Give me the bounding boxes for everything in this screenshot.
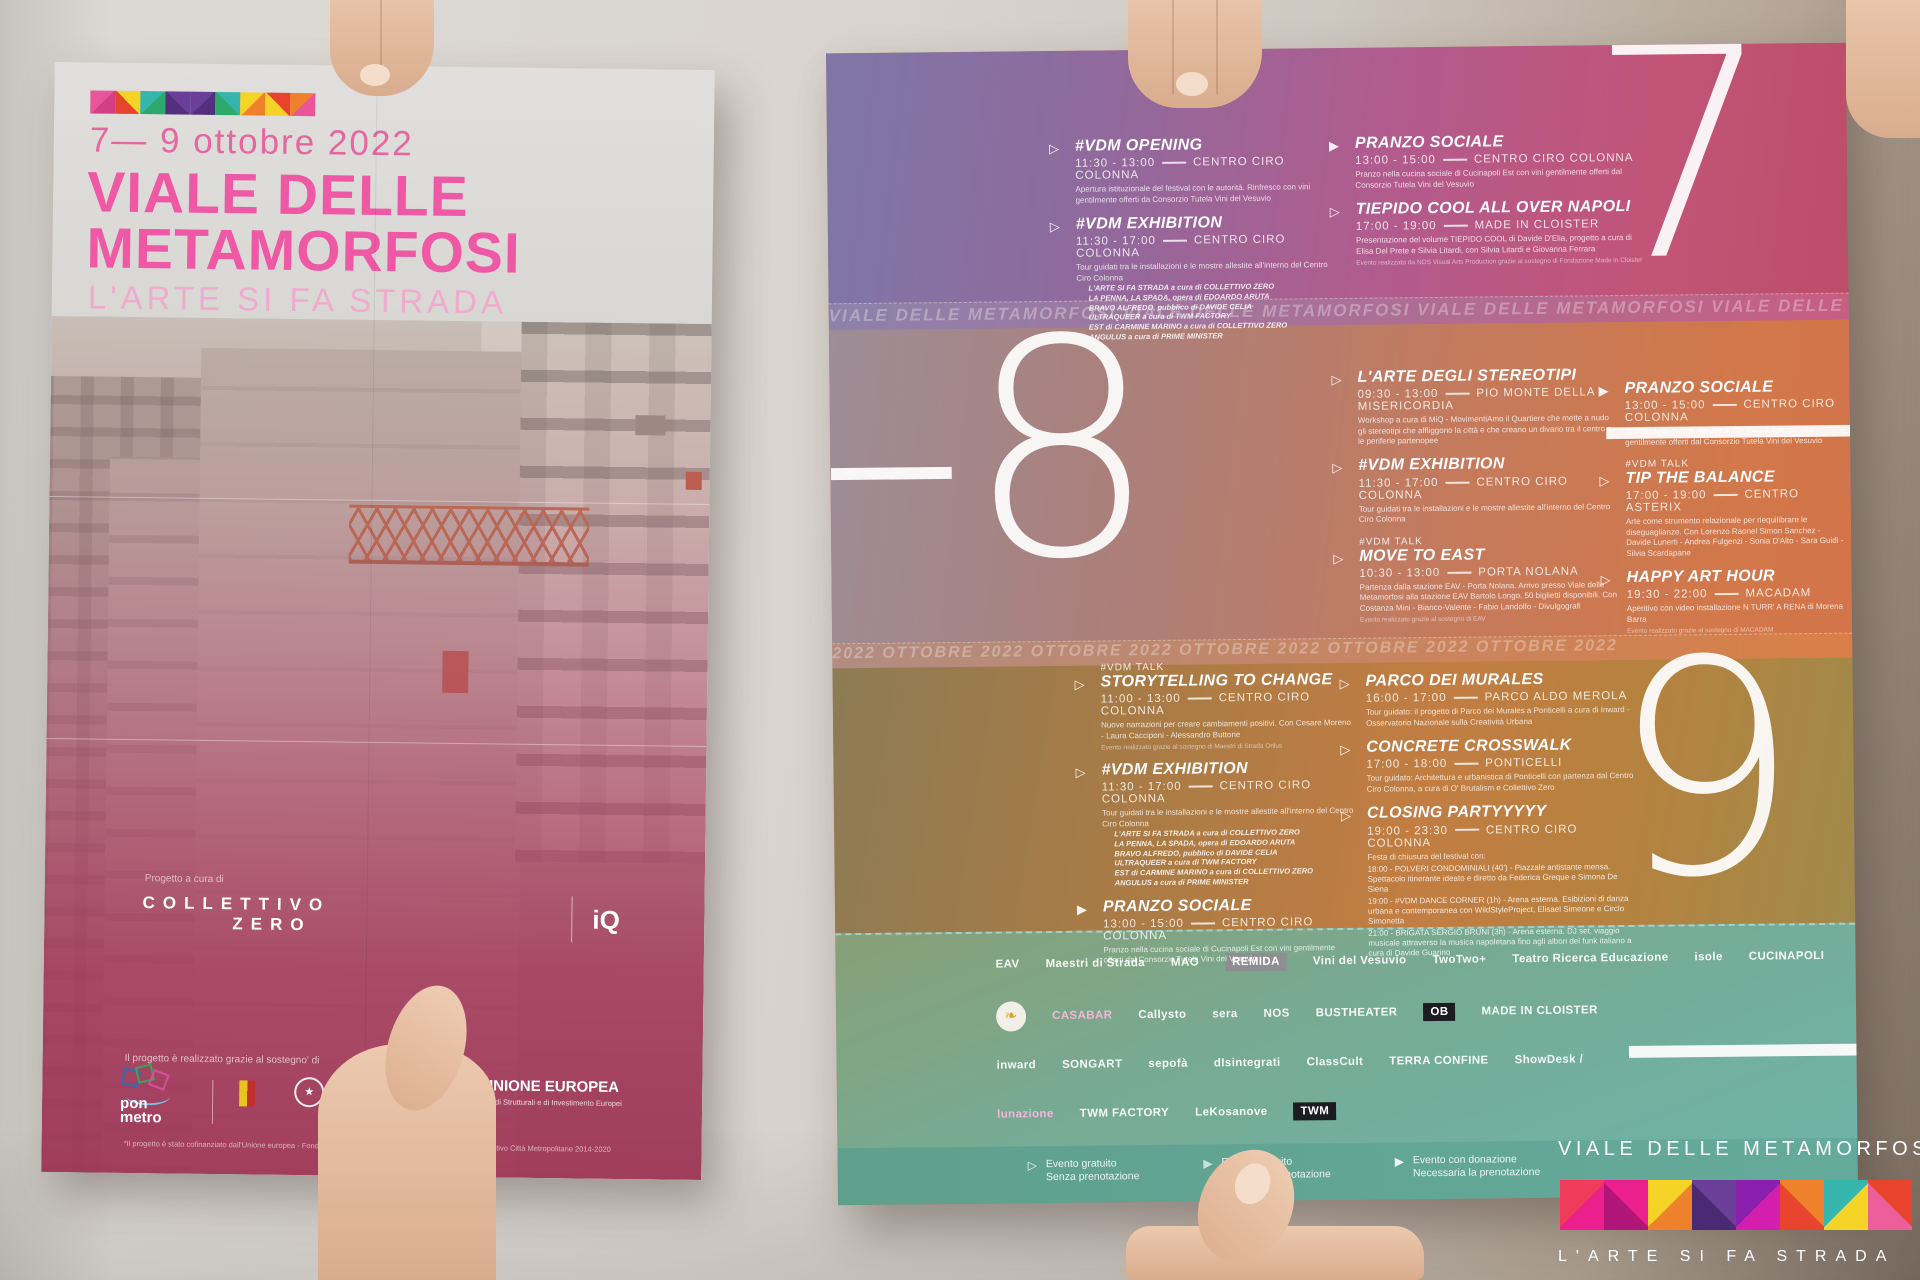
sponsor-logo-callysto: Callysto — [1138, 1009, 1186, 1022]
eu-name: UNIONE EUROPEA — [482, 1077, 619, 1096]
triangle-tile — [1868, 1180, 1912, 1230]
outline-triangle-icon: ▷ — [1050, 219, 1060, 235]
event-time-venue: 13:00 - 15:00CENTRO CIRO COLONNA — [1355, 152, 1647, 167]
dash — [1443, 159, 1467, 161]
event-title: STORYTELLING TO CHANGE — [1101, 672, 1353, 691]
event-desc: Festa di chiusura del festival con: — [1367, 849, 1635, 862]
legend-line: Evento gratuito — [1046, 1157, 1140, 1171]
day8-column-2: ▶ PRANZO SOCIALE 13:00 - 15:00CENTRO CIR… — [1624, 379, 1845, 646]
legend-item-donation: ▶ Evento con donazioneNecessaria la pren… — [1395, 1153, 1541, 1181]
outline-triangle-icon: ▷ — [1340, 676, 1350, 692]
sponsor-logo-twm-factory: TWM FACTORY — [1080, 1107, 1169, 1120]
event-desc: Presentazione del volume TIEPIDO COOL di… — [1356, 233, 1648, 257]
event-time: 17:00 - 18:00 — [1366, 758, 1447, 771]
sponsor-logo-showdesk: ShowDesk / — [1515, 1053, 1584, 1066]
event-title: L'ARTE DEGLI STEREOTIPI — [1357, 367, 1615, 386]
curator-logo-line2: ZERO — [232, 914, 311, 935]
sponsor-logo-sera: sera — [1212, 1008, 1237, 1020]
event-time-venue: 19:00 - 23:30CENTRO CIRO COLONNA — [1367, 822, 1635, 849]
event-time-venue: 13:00 - 15:00CENTRO CIRO COLONNA — [1103, 916, 1355, 943]
event-time: 11:30 - 17:00 — [1358, 477, 1438, 490]
legend-line: Evento con donazione — [1413, 1153, 1540, 1167]
legend-line: Necessaria la prenotazione — [1413, 1166, 1540, 1180]
event-time: 11:30 - 13:00 — [1075, 157, 1155, 170]
event-title: PRANZO SOCIALE — [1355, 133, 1647, 152]
event-desc: Tour guidato: il progetto di Parco dei M… — [1366, 705, 1634, 729]
event-closing-party: ▷ CLOSING PARTYYYYY 19:00 - 23:30CENTRO … — [1367, 803, 1637, 959]
event-desc: Pranzo nella cucina sociale di Cucinapol… — [1355, 167, 1647, 191]
event-title: PARCO DEI MURALES — [1366, 671, 1634, 690]
curator-logo-line1: COLLETTIVO — [142, 893, 330, 915]
filled-triangle-icon: ▶ — [1329, 138, 1339, 154]
triangle-tile — [165, 91, 190, 114]
event-pranzo-sociale-day9: ▶ PRANZO SOCIALE 13:00 - 15:00CENTRO CIR… — [1103, 897, 1356, 967]
dash — [1191, 922, 1215, 924]
iq-logo: iQ — [592, 905, 620, 936]
event-time-venue: 19:30 - 22:00MACADAM — [1627, 587, 1845, 601]
dash — [1162, 162, 1186, 164]
dash — [1713, 404, 1737, 406]
event-desc: Workshop a cura di MiQ - MovimentiAmo il… — [1358, 413, 1616, 447]
sponsor-logo-songart: SONGART — [1062, 1058, 1122, 1071]
day9-numeral: 9— — [1610, 638, 1858, 1162]
outline-triangle-icon: ▷ — [1599, 473, 1609, 489]
event-tiepido-cool: ▷ TIEPIDO COOL ALL OVER NAPOLI 17:00 - 1… — [1356, 199, 1649, 267]
curator-label: Progetto a cura di — [145, 873, 224, 885]
event-time: 11:30 - 17:00 — [1102, 781, 1182, 794]
event-parco-dei-murales: ▷ PARCO DEI MURALES 16:00 - 17:00PARCO A… — [1366, 671, 1635, 729]
event-note: Evento realizzato grazie al sostegno di … — [1627, 626, 1845, 635]
event-time: 17:00 - 19:00 — [1356, 220, 1437, 233]
dash — [1188, 698, 1212, 700]
festival-title-line2: METAMORFOSI — [86, 220, 521, 282]
event-title: TIEPIDO COOL ALL OVER NAPOLI — [1356, 199, 1648, 218]
event-desc: Apertura istituzionale del festival con … — [1075, 182, 1337, 206]
triangle-tile — [90, 90, 115, 113]
dash — [1445, 393, 1469, 395]
hand-top-right — [1128, 0, 1262, 108]
event-desc: Tour guidati tra le installazioni e le m… — [1102, 806, 1354, 829]
artwork-item: ANGULUS a cura di PRIME MINISTER — [1115, 876, 1355, 888]
day7-column-2: ▶ PRANZO SOCIALE 13:00 - 15:00CENTRO CIR… — [1355, 133, 1648, 278]
sponsor-logo-classcult: ClassCult — [1307, 1056, 1364, 1069]
event-desc: Aperitivo con video installazione N TURR… — [1627, 602, 1845, 625]
outline-triangle-icon: ▷ — [1049, 141, 1059, 157]
event-title: PRANZO SOCIALE — [1624, 379, 1842, 398]
fingernail — [1176, 72, 1208, 96]
event-time: 16:00 - 17:00 — [1366, 692, 1447, 705]
overlay-festival-title: VIALE DELLE METAMORFOSI — [1558, 1138, 1920, 1161]
event-vdm-exhibition-day7: ▷ #VDM EXHIBITION 11:30 - 17:00CENTRO CI… — [1076, 214, 1339, 342]
event-note: Evento realizzato grazie al sostegno di … — [1360, 614, 1618, 624]
event-venue: MADE IN CLOISTER — [1475, 219, 1600, 232]
event-title: #VDM OPENING — [1075, 136, 1337, 155]
event-time: 11:30 - 17:00 — [1076, 235, 1156, 248]
pon-metro-logo: pon metro — [120, 1097, 162, 1125]
sponsor-logo-casabar: CASABAR — [1052, 1009, 1112, 1022]
event-time-venue: 17:00 - 19:00CENTRO ASTERIX — [1626, 488, 1844, 514]
sponsor-logo-eav: EAV — [995, 958, 1019, 970]
outline-triangle-icon: ▷ — [1075, 677, 1085, 693]
poster-back: EAV Maestri di Strada MAO REMIDA Vini de… — [826, 43, 1858, 1206]
finger-line — [1216, 0, 1218, 94]
event-arte-degli-stereotipi: ▷ L'ARTE DEGLI STEREOTIPI 09:30 - 13:00P… — [1357, 367, 1616, 447]
pon-metro-icon — [120, 1069, 166, 1096]
event-desc: Tour guidati tra le installazioni e le m… — [1076, 260, 1338, 284]
event-venue: MACADAM — [1745, 587, 1811, 600]
sponsor-logo-nos: NOS — [1264, 1008, 1290, 1020]
event-desc: Nuove narrazioni per creare cambiamenti … — [1101, 718, 1353, 741]
thumbnail — [1229, 1158, 1277, 1210]
outline-triangle-icon: ▷ — [1600, 572, 1610, 588]
event-desc: Tour guidato: Architettura e urbanistica… — [1367, 771, 1635, 795]
dash — [1447, 572, 1471, 574]
triangle-tile — [1780, 1180, 1824, 1230]
poster-front: 7— 9 ottobre 2022 VIALE DELLE METAMORFOS… — [41, 62, 715, 1180]
event-title: CLOSING PARTYYYYY — [1367, 803, 1635, 822]
sponsor-logo-twm: TWM — [1293, 1102, 1336, 1120]
day7-column-1: ▷ #VDM OPENING 11:30 - 13:00CENTRO CIRO … — [1075, 136, 1339, 353]
closing-schedule-item: 18:00 - POLVERI CONDOMINIALI (40') - Pia… — [1368, 862, 1636, 895]
sponsor-logo-made-in-cloister: MADE IN CLOISTER — [1481, 1004, 1597, 1017]
triangle-tile — [240, 92, 265, 115]
event-time: 19:30 - 22:00 — [1627, 588, 1708, 601]
event-venue: PARCO ALDO MEROLA — [1484, 690, 1627, 703]
outline-triangle-icon: ▷ — [1340, 742, 1350, 758]
gingko-logo: ❧ — [996, 1001, 1026, 1031]
dash — [1189, 786, 1213, 788]
event-time: 10:30 - 13:00 — [1359, 567, 1440, 580]
sponsor-logo-sepofa: sepofà — [1148, 1058, 1188, 1070]
triangle-tile — [1648, 1180, 1692, 1230]
triangle-tile — [1736, 1180, 1780, 1230]
fingernail — [360, 64, 390, 86]
triangle-tile — [1604, 1180, 1648, 1230]
event-time-venue: 11:30 - 17:00CENTRO CIRO COLONNA — [1358, 475, 1616, 502]
event-time: 13:00 - 15:00 — [1103, 918, 1184, 931]
event-happy-art-hour: ▷ HAPPY ART HOUR 19:30 - 22:00MACADAM Ap… — [1626, 568, 1845, 635]
event-desc: Partenza dalla stazione EAV - Porta Nola… — [1360, 580, 1618, 614]
outline-triangle-icon: ▷ — [1028, 1158, 1038, 1184]
event-time: 11:00 - 13:00 — [1101, 693, 1181, 706]
festival-dates: 7— 9 ottobre 2022 — [90, 120, 414, 164]
dash — [1455, 829, 1479, 831]
pon-metro-word2: metro — [120, 1111, 162, 1125]
comune-napoli-flag — [239, 1080, 255, 1106]
dash — [1444, 225, 1468, 227]
outline-triangle-icon: ▷ — [1341, 808, 1351, 824]
sponsor-logo-disintegrati: dIsintegrati — [1214, 1057, 1281, 1070]
event-storytelling-to-change: ▷ #VDM TALK STORYTELLING TO CHANGE 11:00… — [1100, 660, 1353, 752]
event-vdm-exhibition-day9: ▷ #VDM EXHIBITION 11:30 - 17:00CENTRO CI… — [1101, 760, 1354, 888]
event-title: CONCRETE CROSSWALK — [1366, 737, 1634, 756]
triangle-tile — [115, 91, 140, 114]
closing-schedule-item: 19:00 - #VDM DANCE CORNER (1h) - Arena e… — [1368, 894, 1636, 927]
support-label: Il progetto è realizzato grazie al soste… — [125, 1053, 320, 1066]
outline-triangle-icon: ▷ — [1075, 765, 1085, 781]
event-title: PRANZO SOCIALE — [1103, 897, 1355, 916]
event-title: TIP THE BALANCE — [1625, 469, 1843, 488]
event-pranzo-sociale-day7: ▶ PRANZO SOCIALE 13:00 - 15:00CENTRO CIR… — [1355, 133, 1648, 191]
event-time-venue: 17:00 - 18:00PONTICELLI — [1366, 756, 1634, 771]
finger-line — [1172, 0, 1174, 94]
event-time-venue: 16:00 - 17:00PARCO ALDO MEROLA — [1366, 690, 1634, 705]
outline-triangle-icon: ▷ — [1333, 551, 1343, 567]
hand-top-corner — [1846, 0, 1920, 138]
triangle-tile — [215, 92, 240, 115]
event-time: 19:00 - 23:30 — [1367, 824, 1448, 837]
event-title: #VDM EXHIBITION — [1101, 760, 1353, 779]
filled-triangle-icon: ▶ — [1395, 1154, 1405, 1180]
event-venue: PONTICELLI — [1485, 757, 1562, 770]
sponsor-logo-ob: OB — [1423, 1003, 1455, 1021]
event-time: 17:00 - 19:00 — [1626, 490, 1707, 503]
event-time-venue: 13:00 - 15:00CENTRO CIRO COLONNA — [1625, 398, 1843, 424]
dash — [1445, 481, 1469, 483]
event-title: HAPPY ART HOUR — [1626, 568, 1844, 587]
day9-column-1: ▷ #VDM TALK STORYTELLING TO CHANGE 11:00… — [1100, 660, 1355, 977]
event-time-venue: 17:00 - 19:00MADE IN CLOISTER — [1356, 218, 1648, 233]
event-time: 13:00 - 15:00 — [1625, 399, 1706, 412]
overlay-triangle-strip — [1560, 1180, 1912, 1230]
sponsor-logo-terra-confine: TERRA CONFINE — [1389, 1054, 1488, 1067]
eu-subtitle: Fondi Strutturali e di Investimento Euro… — [482, 1097, 622, 1108]
outline-triangle-icon: ▷ — [1330, 204, 1340, 220]
event-title: MOVE TO EAST — [1359, 546, 1617, 565]
festival-subtitle: L'ARTE SI FA STRADA — [88, 278, 508, 321]
event-title: #VDM EXHIBITION — [1076, 214, 1338, 233]
event-time-venue: 10:30 - 13:00PORTA NOLANA — [1359, 565, 1617, 580]
filled-triangle-icon: ▶ — [1598, 383, 1608, 399]
filled-triangle-icon: ▶ — [1077, 901, 1087, 917]
sponsor-logo-bustheater: BUSTHEATER — [1316, 1006, 1398, 1019]
sponsor-logo-lunazione: lunazione — [997, 1108, 1054, 1121]
day9-column-2: ▷ PARCO DEI MURALES 16:00 - 17:00PARCO A… — [1366, 671, 1637, 970]
event-move-to-east: ▷ #VDM TALK MOVE TO EAST 10:30 - 13:00PO… — [1359, 534, 1618, 624]
event-desc: Pranzo nella cucina sociale di Cucinapol… — [1103, 943, 1355, 966]
triangle-tile — [190, 92, 215, 115]
event-pranzo-sociale-day8: ▶ PRANZO SOCIALE 13:00 - 15:00CENTRO CIR… — [1624, 379, 1843, 448]
outline-triangle-icon: ▷ — [1331, 372, 1341, 388]
sponsor-logo-lekosanove: LeKosanove — [1195, 1106, 1268, 1119]
triangle-tile — [1692, 1180, 1736, 1230]
event-vdm-opening: ▷ #VDM OPENING 11:30 - 13:00CENTRO CIRO … — [1075, 136, 1338, 206]
legend-line: Senza prenotazione — [1046, 1170, 1140, 1184]
event-note: Evento realizzato grazie al sostegno di … — [1101, 742, 1353, 752]
event-concrete-crosswalk: ▷ CONCRETE CROSSWALK 17:00 - 18:00PONTIC… — [1366, 737, 1635, 795]
event-vdm-exhibition-day8: ▷ #VDM EXHIBITION 11:30 - 17:00CENTRO CI… — [1358, 456, 1617, 526]
event-time-venue: 11:30 - 17:00CENTRO CIRO COLONNA — [1076, 233, 1338, 260]
triangle-tile — [265, 93, 290, 116]
triangle-tile — [1560, 1180, 1604, 1230]
event-desc: Arte come strumento relazionale per rieq… — [1626, 515, 1844, 559]
outline-triangle-icon: ▷ — [1332, 460, 1342, 476]
event-venue: PORTA NOLANA — [1478, 565, 1579, 578]
dash — [1713, 494, 1737, 496]
logo-triangle-strip — [90, 90, 315, 116]
event-title: #VDM EXHIBITION — [1358, 456, 1616, 475]
day8-numeral: –8 — [826, 318, 1158, 586]
artwork-item: ANGULUS a cura di PRIME MINISTER — [1089, 330, 1339, 342]
closing-schedule-item: 21:00 - BRIGATA SERGIO BRUNI (3h) - Aren… — [1368, 926, 1636, 959]
event-time-venue: 11:30 - 17:00CENTRO CIRO COLONNA — [1102, 779, 1354, 806]
event-tip-the-balance: ▷ #VDM TALK TIP THE BALANCE 17:00 - 19:0… — [1625, 457, 1844, 559]
legend-item-free: ▷ Evento gratuitoSenza prenotazione — [1028, 1157, 1140, 1184]
dash — [1454, 697, 1478, 699]
event-time-venue: 09:30 - 13:00PIO MONTE DELLA MISERICORDI… — [1358, 386, 1616, 413]
event-desc: Tour guidati tra le installazioni e le m… — [1359, 502, 1617, 525]
dash — [1714, 593, 1738, 595]
dash — [1163, 240, 1187, 242]
event-time: 09:30 - 13:00 — [1358, 388, 1439, 401]
poster-front-header: 7— 9 ottobre 2022 VIALE DELLE METAMORFOS… — [52, 62, 715, 324]
event-desc: Pranzo nella cucina sociale di Cucinapol… — [1625, 425, 1843, 448]
dash — [1454, 763, 1478, 765]
photo-scene: 7— 9 ottobre 2022 VIALE DELLE METAMORFOS… — [0, 0, 1920, 1280]
event-venue: CENTRO CIRO COLONNA — [1474, 152, 1634, 166]
event-note: Evento realizzato da NOS Visual Arts Pro… — [1356, 257, 1648, 267]
triangle-tile — [290, 93, 315, 116]
triangle-tile — [140, 91, 165, 114]
triangle-tile — [1824, 1180, 1868, 1230]
event-time-venue: 11:00 - 13:00CENTRO CIRO COLONNA — [1101, 691, 1353, 718]
event-time-venue: 11:30 - 13:00CENTRO CIRO COLONNA — [1075, 155, 1337, 182]
event-time: 13:00 - 15:00 — [1355, 154, 1436, 167]
day8-column-1: ▷ L'ARTE DEGLI STEREOTIPI 09:30 - 13:00P… — [1357, 367, 1618, 635]
sponsor-logo-inward: inward — [997, 1059, 1037, 1071]
overlay-festival-subtitle: L'ARTE SI FA STRADA — [1558, 1248, 1895, 1266]
